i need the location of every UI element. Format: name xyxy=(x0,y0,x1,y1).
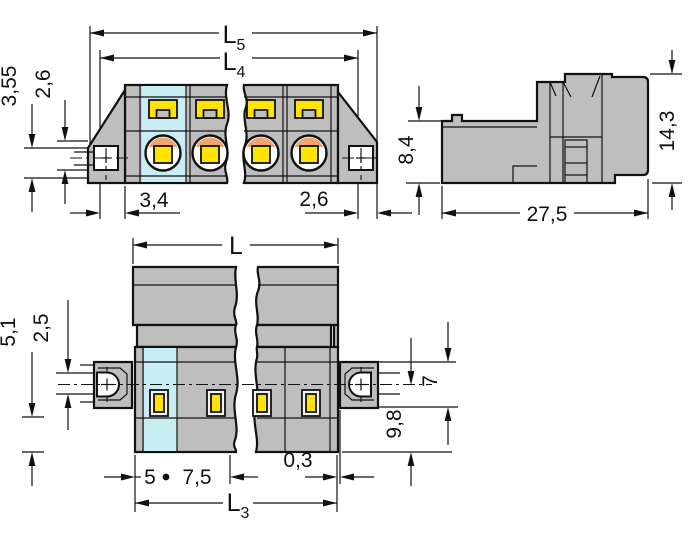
front-right-flange xyxy=(338,92,380,184)
dim-03: 0,3 xyxy=(283,449,374,481)
front-view: L5 L4 xyxy=(0,21,412,219)
dim-26-right: 2,6 xyxy=(299,188,412,217)
dim-143: 14,3 xyxy=(650,50,682,210)
dim-7: 7 xyxy=(419,322,451,445)
plan-top-block xyxy=(133,267,338,325)
dim-03-label: 0,3 xyxy=(283,449,312,472)
dim-l-label: L xyxy=(229,232,243,260)
dim-5-label: 5 xyxy=(144,466,156,489)
dim-l3: L3 xyxy=(135,489,337,522)
dim-l3-label: L3 xyxy=(227,489,250,522)
side-profile xyxy=(442,74,648,183)
dim-355: 3,55 xyxy=(0,66,35,212)
dim-98: 9,8 xyxy=(342,338,452,486)
dim-25: 2,5 xyxy=(30,300,71,430)
dim-98-label: 9,8 xyxy=(383,409,406,438)
dim-l: L xyxy=(133,232,338,264)
dim-275-label: 27,5 xyxy=(527,203,568,226)
dim-26-right-label: 2,6 xyxy=(299,188,328,211)
plan-middle-strip xyxy=(137,325,338,347)
dim-l4: L4 xyxy=(100,48,358,81)
plan-main-body xyxy=(135,347,338,452)
dim-84: 8,4 xyxy=(395,86,444,215)
dim-26-left: 2,6 xyxy=(32,69,68,204)
technical-drawing-page: L5 L4 xyxy=(0,0,700,546)
dim-25-label: 2,5 xyxy=(30,313,53,342)
side-view: 8,4 14,3 27,5 xyxy=(395,50,682,226)
plan-view: L xyxy=(0,232,458,522)
dim-275: 27,5 xyxy=(442,179,648,226)
dim-75-label: 7,5 xyxy=(182,466,211,489)
dim-51-label: 5,1 xyxy=(0,317,20,346)
dim-355-label: 3,55 xyxy=(0,66,21,107)
dim-34-label: 3,4 xyxy=(139,189,169,212)
dim-84-label: 8,4 xyxy=(395,135,418,165)
dim-7-label: 7 xyxy=(419,375,442,387)
connector-dimension-drawing: L5 L4 xyxy=(0,0,700,546)
dim-143-label: 14,3 xyxy=(656,111,679,152)
dim-5-75: 5 7,5 xyxy=(104,466,258,489)
front-body xyxy=(125,85,338,183)
dim-26-left-label: 2,6 xyxy=(32,69,55,98)
